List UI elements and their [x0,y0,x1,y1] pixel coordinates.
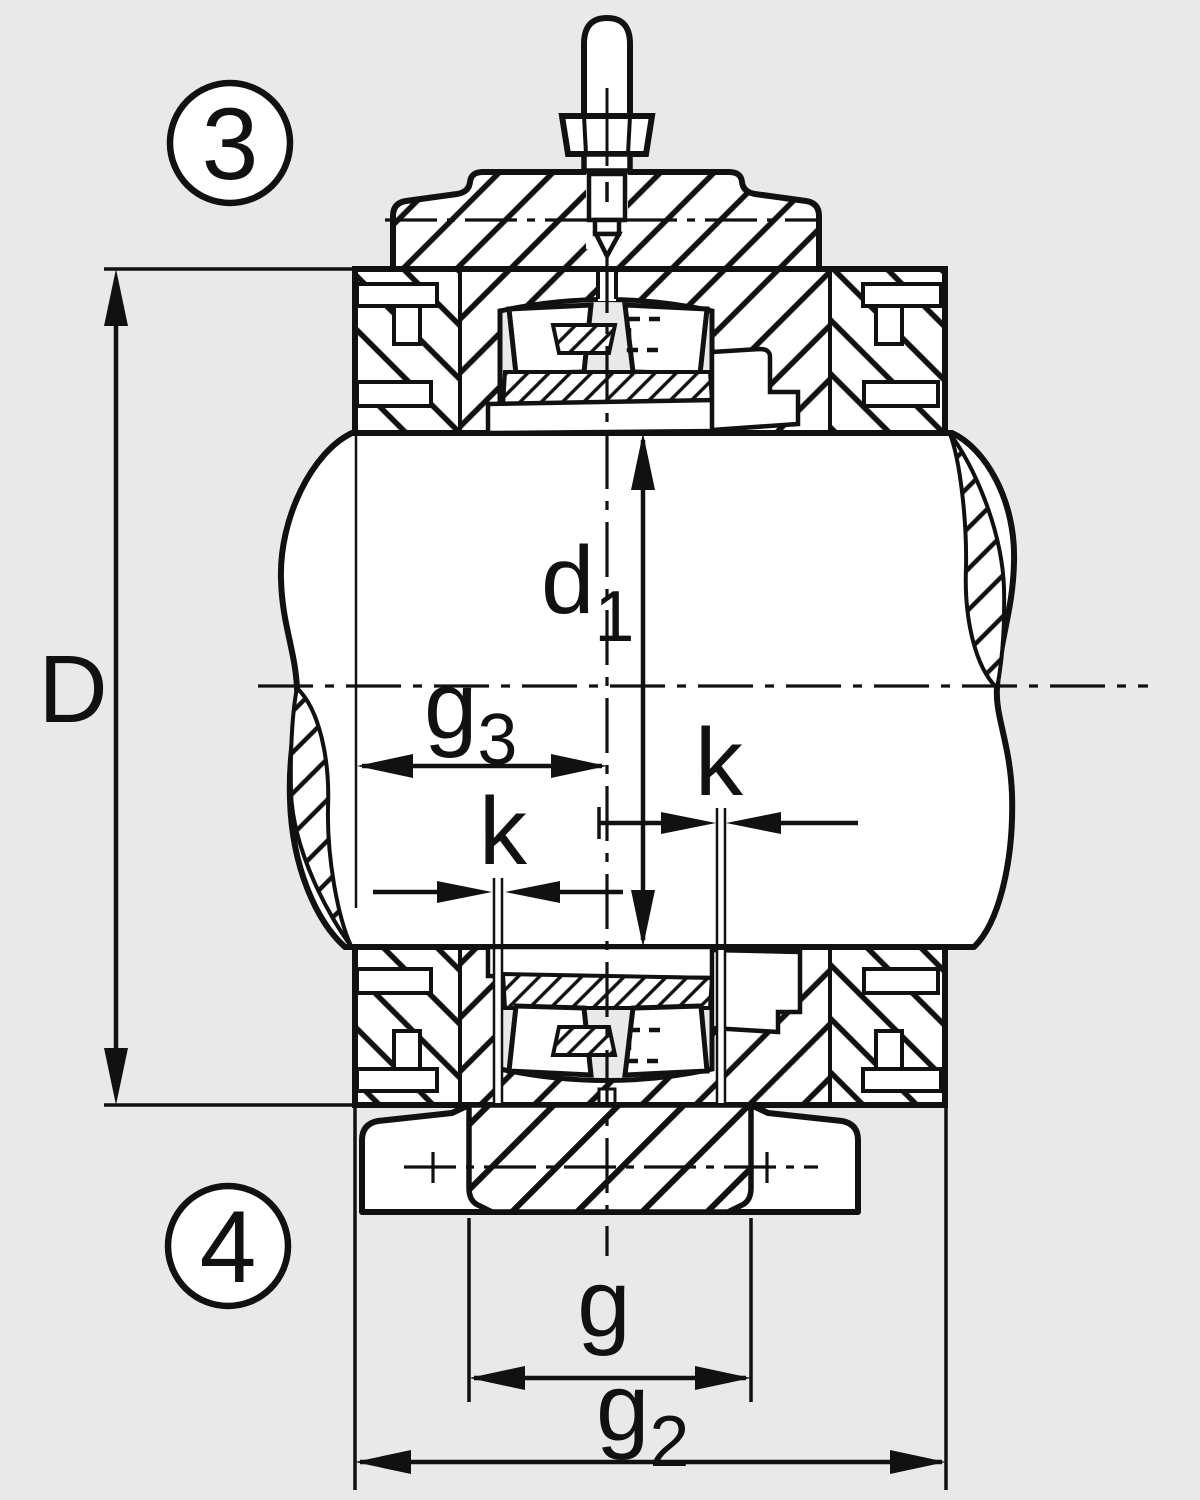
label-k-right: k [695,709,744,816]
callout-3-number: 3 [202,87,259,201]
callout-4: 4 [168,1186,288,1306]
roller-upper-right [625,305,707,374]
label-D: D [38,636,107,743]
callout-3: 3 [170,83,290,203]
housing-base [362,1105,858,1212]
shaft [281,433,1014,947]
base-center-block [469,1105,751,1212]
adapter-sleeve-upper [488,400,716,433]
callout-4-number: 4 [200,1190,257,1304]
label-g: g [577,1250,630,1357]
shaft-body [281,433,1014,947]
roller-lower-right [625,1006,707,1075]
technical-drawing: D d1 g3 k k g [0,0,1200,1500]
housing-lower [355,947,945,1105]
label-k-left: k [479,778,528,885]
housing-upper [355,267,945,433]
